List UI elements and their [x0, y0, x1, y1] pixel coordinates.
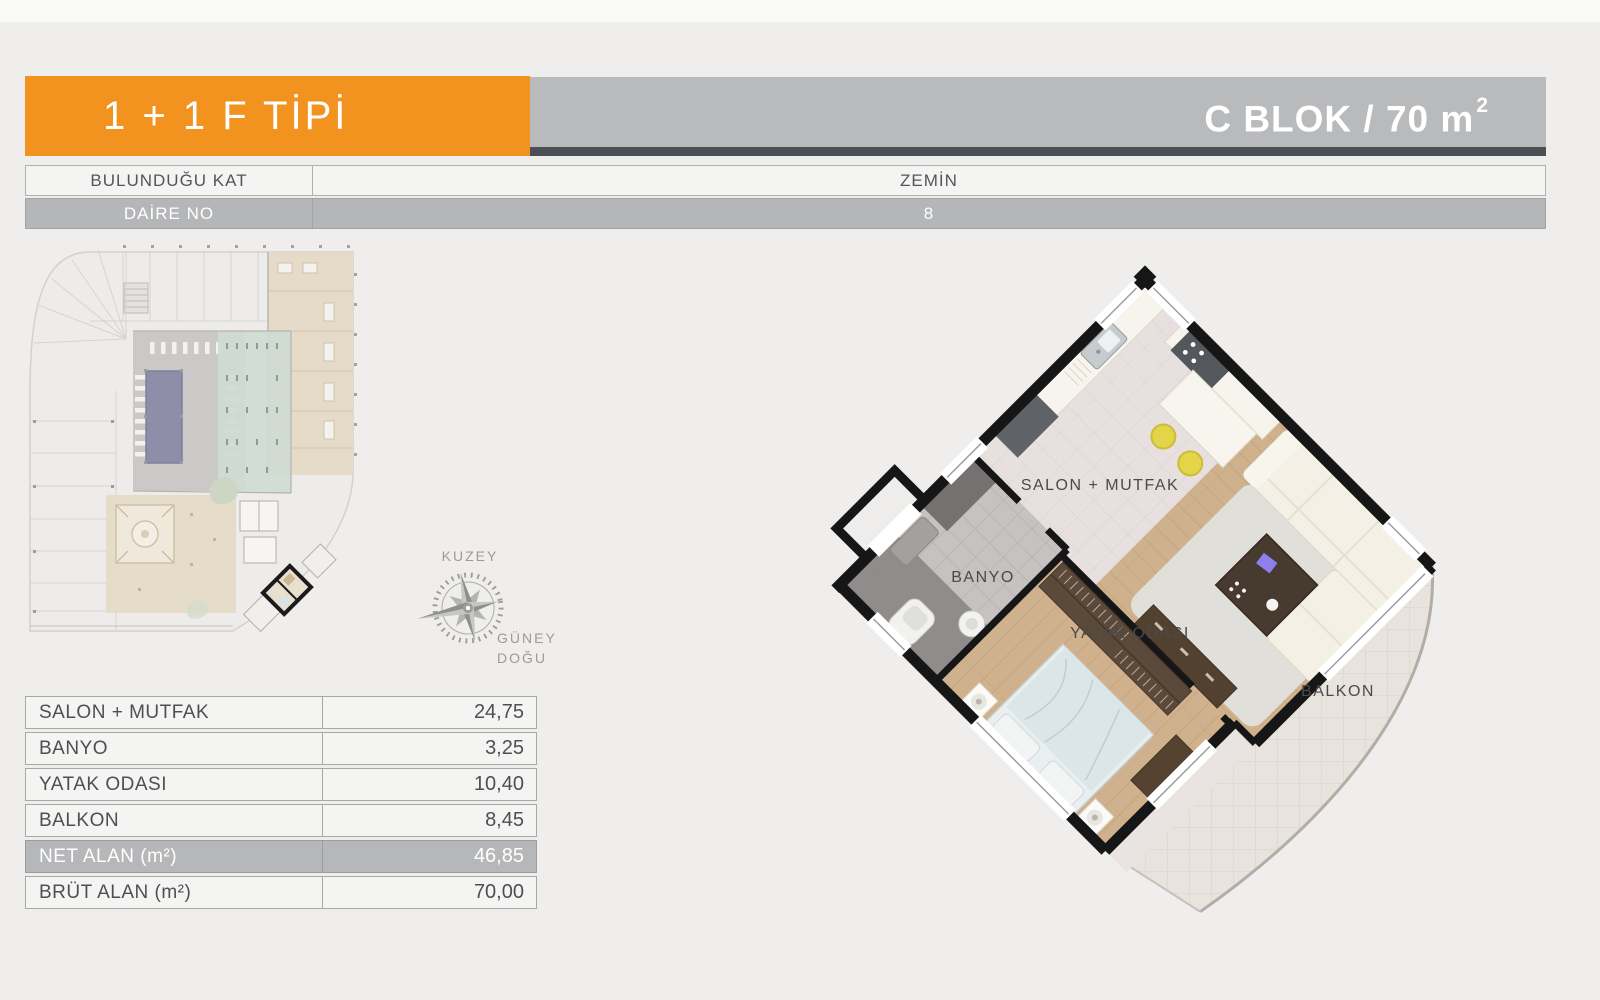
- plan-label-yatak: YATAK ODASI: [1070, 625, 1190, 643]
- area-value: 10,40: [323, 769, 536, 800]
- block-title-sup: 2: [1476, 94, 1489, 117]
- info-label: BULUNDUĞU KAT: [26, 166, 313, 195]
- type-title-box: 1 + 1 F TİPİ: [25, 76, 530, 156]
- info-value: ZEMİN: [313, 166, 1545, 195]
- area-label: SALON + MUTFAK: [26, 697, 323, 728]
- plan-label-salon: SALON + MUTFAK: [1021, 477, 1179, 495]
- info-row-unit-no: DAİRE NO 8: [25, 198, 1546, 229]
- compass-south-line1: GÜNEY: [497, 628, 557, 648]
- area-label: BRÜT ALAN (m²): [26, 877, 323, 908]
- compass-south-line2: DOĞU: [497, 648, 557, 668]
- type-title: 1 + 1 F TİPİ: [103, 94, 348, 138]
- area-table: SALON + MUTFAK 24,75 BANYO 3,25 YATAK OD…: [25, 696, 537, 912]
- area-row-yatak: YATAK ODASI 10,40: [25, 768, 537, 801]
- compass-south-label: GÜNEY DOĞU: [497, 628, 557, 668]
- area-row-banyo: BANYO 3,25: [25, 732, 537, 765]
- apartment-floor-plan: [810, 230, 1520, 960]
- info-value: 8: [313, 199, 1545, 228]
- info-label: DAİRE NO: [26, 199, 313, 228]
- page-top-band: [0, 0, 1600, 22]
- area-row-net: NET ALAN (m²) 46,85: [25, 840, 537, 873]
- area-value: 24,75: [323, 697, 536, 728]
- area-value: 8,45: [323, 805, 536, 836]
- block-title-bar: C BLOK / 70 m2: [530, 77, 1546, 147]
- area-label: BANYO: [26, 733, 323, 764]
- compass-north-label: KUZEY: [442, 548, 499, 564]
- plan-label-balkon: BALKON: [1301, 683, 1375, 701]
- area-value: 46,85: [323, 841, 536, 872]
- info-row-floor: BULUNDUĞU KAT ZEMİN: [25, 165, 1546, 196]
- area-label: YATAK ODASI: [26, 769, 323, 800]
- area-row-balkon: BALKON 8,45: [25, 804, 537, 837]
- info-table: BULUNDUĞU KAT ZEMİN DAİRE NO 8: [25, 165, 1546, 231]
- area-row-salon: SALON + MUTFAK 24,75: [25, 696, 537, 729]
- area-label: NET ALAN (m²): [26, 841, 323, 872]
- area-label: BALKON: [26, 805, 323, 836]
- area-row-brut: BRÜT ALAN (m²) 70,00: [25, 876, 537, 909]
- site-key-plan: [28, 243, 358, 638]
- block-title-underline: [530, 147, 1546, 156]
- area-value: 3,25: [323, 733, 536, 764]
- area-value: 70,00: [323, 877, 536, 908]
- block-title: C BLOK / 70 m: [1204, 98, 1474, 139]
- plan-label-banyo: BANYO: [951, 569, 1015, 587]
